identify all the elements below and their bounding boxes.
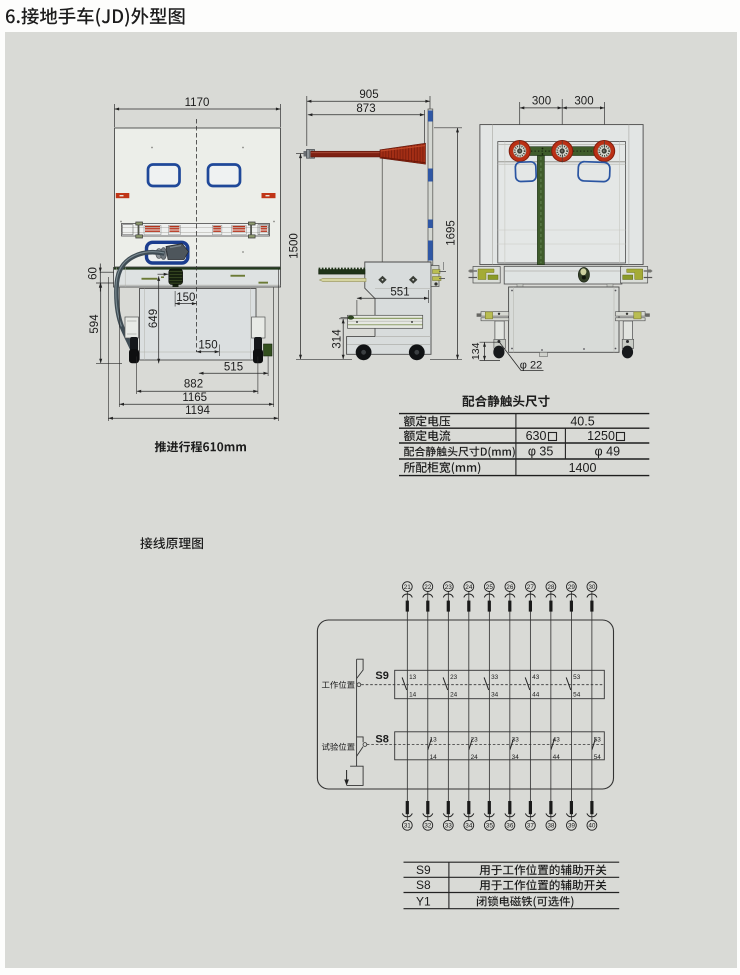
svg-text:φ 22: φ 22 — [520, 359, 542, 371]
svg-text:649: 649 — [148, 309, 160, 328]
svg-text:24: 24 — [471, 754, 479, 761]
svg-text:40.5: 40.5 — [570, 415, 594, 429]
svg-text:44: 44 — [532, 692, 540, 699]
svg-text:53: 53 — [573, 674, 581, 681]
svg-text:905: 905 — [359, 89, 378, 101]
svg-text:24: 24 — [450, 692, 458, 699]
svg-text:53: 53 — [594, 736, 602, 743]
svg-text:1250: 1250 — [587, 429, 615, 443]
svg-text:39: 39 — [568, 823, 576, 830]
svg-text:1695: 1695 — [446, 220, 458, 246]
svg-text:36: 36 — [506, 823, 514, 830]
svg-text:630: 630 — [526, 429, 547, 443]
svg-text:30: 30 — [588, 584, 596, 591]
svg-text:14: 14 — [430, 754, 438, 761]
svg-text:25: 25 — [486, 584, 494, 591]
svg-text:300: 300 — [574, 96, 593, 108]
svg-text:34: 34 — [512, 754, 520, 761]
svg-text:27: 27 — [527, 584, 535, 591]
svg-text:34: 34 — [465, 823, 473, 830]
svg-text:φ 35: φ 35 — [528, 445, 554, 459]
svg-text:35: 35 — [486, 823, 494, 830]
svg-text:515: 515 — [224, 361, 243, 373]
svg-text:24: 24 — [465, 584, 473, 591]
svg-text:1165: 1165 — [182, 392, 207, 404]
svg-text:314: 314 — [332, 329, 344, 349]
svg-text:31: 31 — [404, 823, 412, 830]
svg-text:S8: S8 — [416, 878, 431, 892]
svg-text:33: 33 — [512, 736, 520, 743]
svg-text:33: 33 — [491, 674, 499, 681]
svg-text:23: 23 — [450, 674, 458, 681]
svg-text:23: 23 — [471, 736, 479, 743]
svg-text:150: 150 — [176, 292, 195, 304]
svg-text:13: 13 — [409, 674, 417, 681]
svg-text:38: 38 — [547, 823, 555, 830]
svg-text:28: 28 — [547, 584, 555, 591]
svg-text:22: 22 — [424, 584, 432, 591]
svg-text:S8: S8 — [375, 733, 388, 745]
svg-text:1500: 1500 — [288, 233, 300, 259]
svg-text:33: 33 — [445, 823, 453, 830]
svg-text:134: 134 — [470, 342, 482, 360]
svg-text:21: 21 — [404, 584, 412, 591]
svg-text:882: 882 — [184, 379, 203, 391]
svg-text:29: 29 — [568, 584, 576, 591]
svg-text:34: 34 — [491, 692, 499, 699]
svg-text:1400: 1400 — [569, 461, 597, 475]
svg-text:S9: S9 — [416, 863, 431, 877]
svg-text:14: 14 — [409, 692, 417, 699]
svg-text:594: 594 — [89, 314, 101, 334]
svg-text:43: 43 — [532, 674, 540, 681]
svg-text:S9: S9 — [375, 670, 388, 682]
svg-text:54: 54 — [594, 754, 602, 761]
svg-text:300: 300 — [532, 96, 551, 108]
svg-text:32: 32 — [424, 823, 432, 830]
svg-text:13: 13 — [430, 736, 438, 743]
svg-text:23: 23 — [445, 584, 453, 591]
svg-text:40: 40 — [588, 823, 596, 830]
svg-text:26: 26 — [506, 584, 514, 591]
svg-text:150: 150 — [198, 340, 217, 352]
svg-text:60: 60 — [87, 267, 99, 280]
svg-text:1170: 1170 — [185, 97, 210, 109]
svg-text:φ 49: φ 49 — [595, 445, 621, 459]
svg-text:43: 43 — [553, 736, 561, 743]
svg-text:551: 551 — [390, 286, 409, 298]
svg-text:37: 37 — [527, 823, 535, 830]
svg-text:54: 54 — [573, 692, 581, 699]
svg-text:873: 873 — [356, 103, 375, 115]
svg-text:44: 44 — [553, 754, 561, 761]
svg-text:1194: 1194 — [185, 405, 210, 417]
svg-text:Y1: Y1 — [416, 894, 431, 908]
